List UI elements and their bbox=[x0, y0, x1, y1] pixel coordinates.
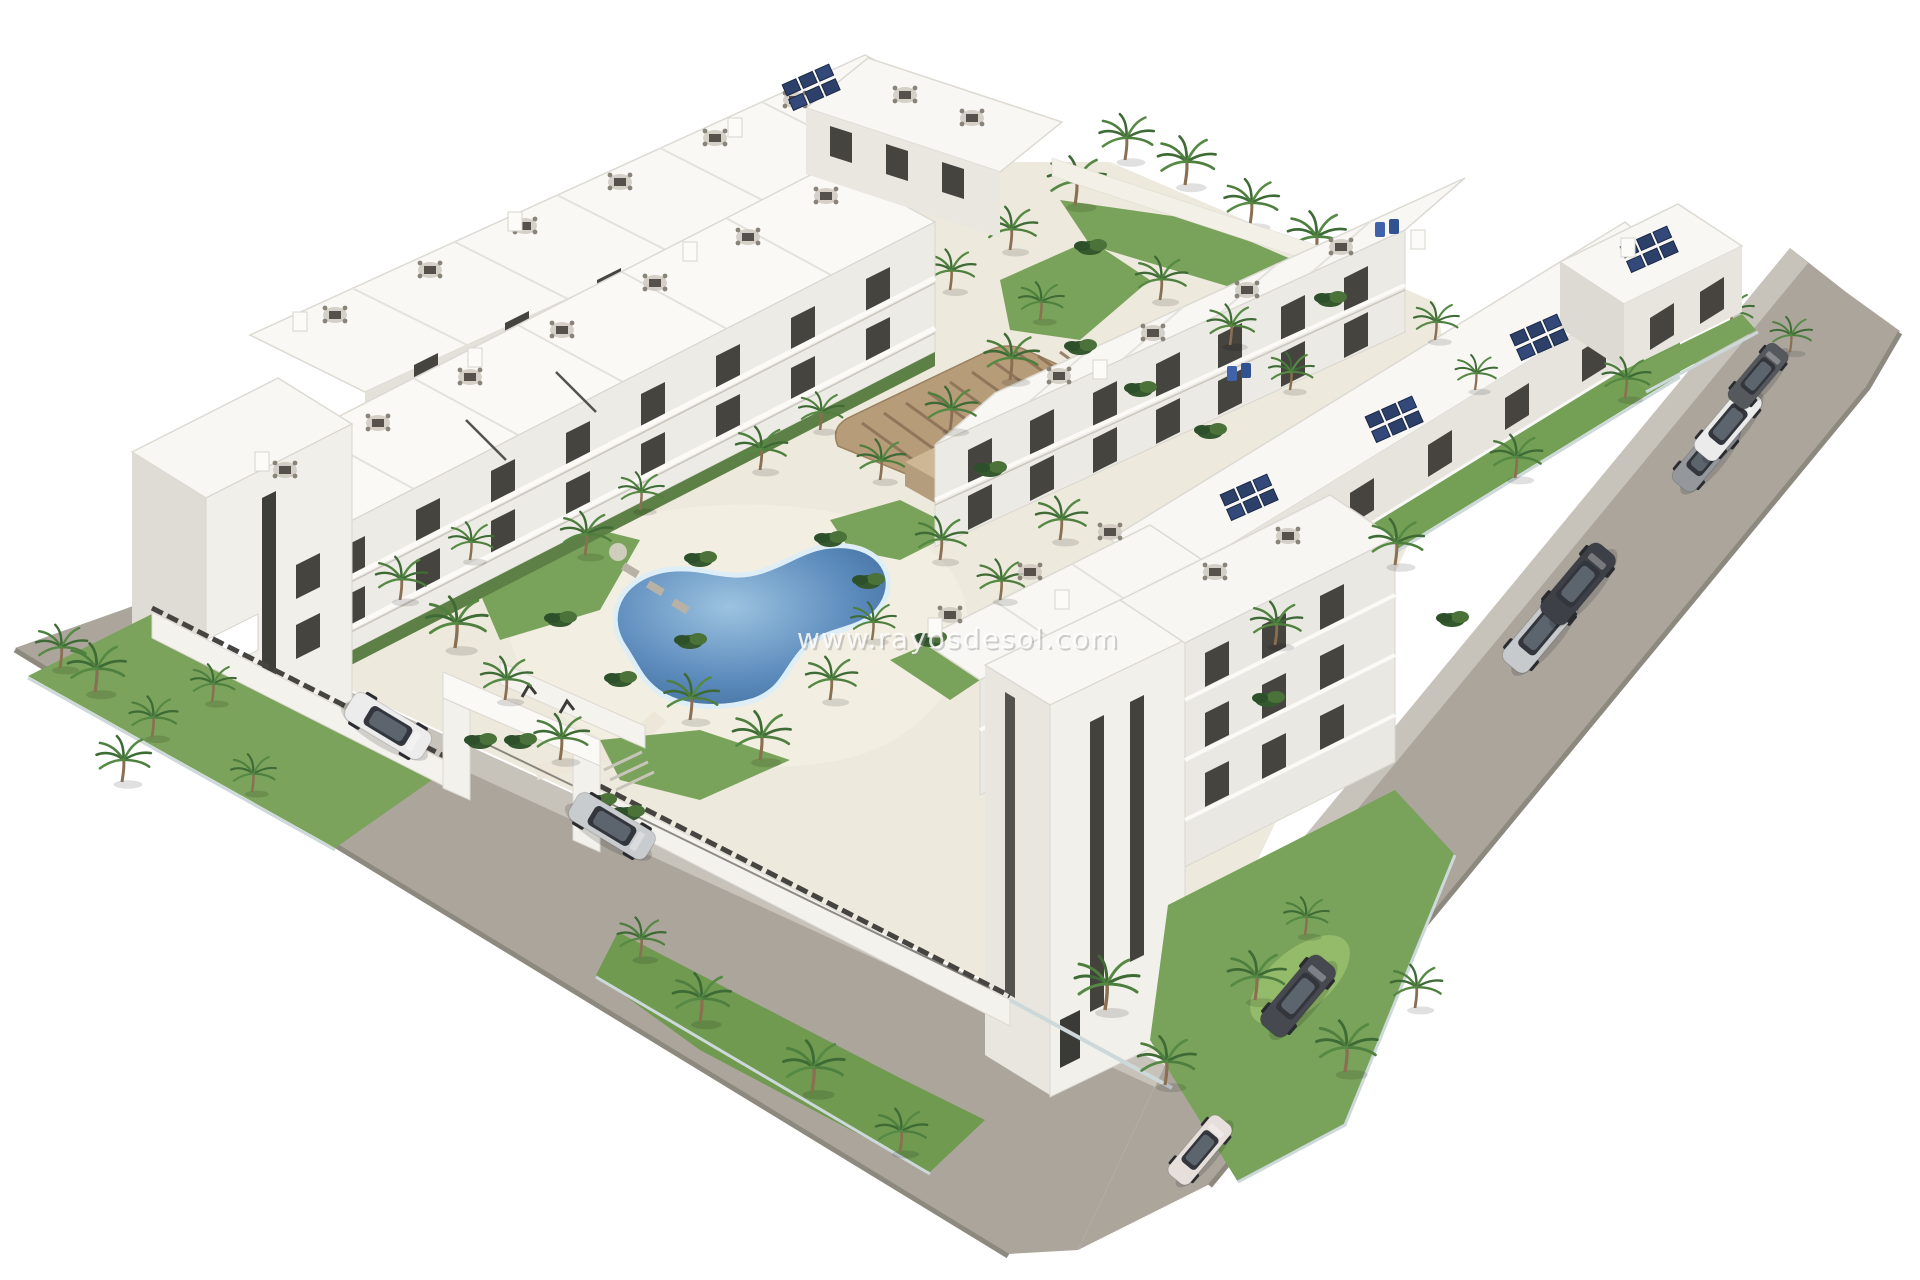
roof-terrace-furniture bbox=[736, 228, 761, 246]
slit-window bbox=[1005, 692, 1015, 998]
roof-terrace-furniture bbox=[1018, 563, 1043, 581]
roof-terrace-furniture bbox=[608, 173, 633, 191]
roof-terrace-furniture bbox=[1276, 527, 1301, 545]
roof-terrace-furniture bbox=[1047, 367, 1072, 385]
slit-window bbox=[262, 491, 276, 688]
gate-pillar bbox=[443, 698, 470, 800]
palm-tree bbox=[1158, 136, 1216, 192]
roof-chimney bbox=[293, 312, 307, 331]
roof-chimney bbox=[468, 348, 482, 367]
roof-terrace-furniture bbox=[1141, 324, 1166, 342]
palm-tree bbox=[97, 736, 151, 789]
roof-chimney bbox=[508, 212, 522, 231]
roof-terrace-furniture bbox=[960, 109, 985, 127]
roof-terrace-furniture bbox=[1098, 523, 1123, 541]
roof-terrace-furniture bbox=[1329, 238, 1354, 256]
entrance-door bbox=[1060, 1010, 1080, 1068]
watermark-text: www.rayosdesol.com bbox=[797, 622, 1119, 655]
roof-terrace-furniture bbox=[893, 86, 918, 104]
roof-terrace-furniture bbox=[366, 414, 391, 432]
roof-terrace-furniture bbox=[550, 321, 575, 339]
slit-window bbox=[1130, 695, 1144, 962]
umbrella bbox=[609, 543, 627, 561]
bush bbox=[1436, 611, 1469, 627]
roof-chimney bbox=[683, 242, 697, 261]
complex-rendering: www.rayosdesol.com www.rayosdesol.com bbox=[0, 0, 1920, 1280]
roof-chimney bbox=[1055, 590, 1069, 609]
roof-chimney bbox=[1411, 230, 1425, 249]
roof-chimney bbox=[255, 452, 269, 471]
roof-chimney bbox=[1621, 238, 1635, 257]
roof-terrace-furniture bbox=[458, 368, 483, 386]
roof-terrace-furniture bbox=[323, 306, 348, 324]
roof-terrace-furniture bbox=[1203, 563, 1228, 581]
roof-terrace-furniture bbox=[1235, 281, 1260, 299]
roof-terrace-furniture bbox=[643, 274, 668, 292]
rendering-canvas: www.rayosdesol.com www.rayosdesol.com bbox=[0, 0, 1920, 1280]
roof-terrace-furniture bbox=[273, 461, 298, 479]
roof-terrace-furniture bbox=[703, 129, 728, 147]
roof-chimney bbox=[728, 118, 742, 137]
roof-chimney bbox=[1093, 360, 1107, 379]
roof-terrace-furniture bbox=[814, 187, 839, 205]
roof-terrace-furniture bbox=[418, 261, 443, 279]
palm-tree bbox=[1100, 114, 1154, 167]
